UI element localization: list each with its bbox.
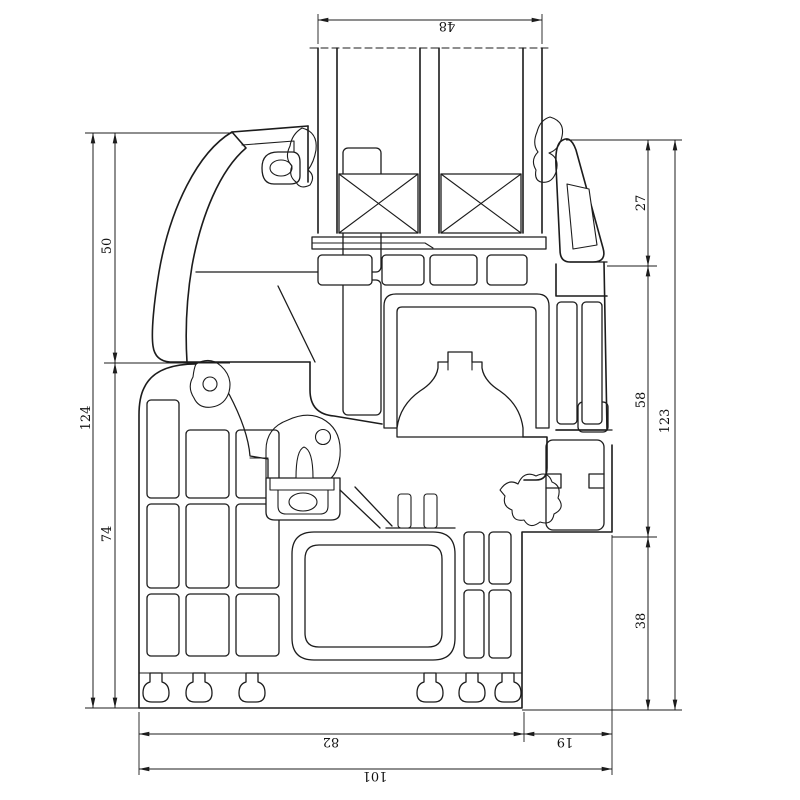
dim-label-right-overall: 123 <box>658 409 673 434</box>
dim-label-top-glazing: 48 <box>439 18 456 33</box>
setting-blocks <box>318 255 527 285</box>
hardware-groove <box>397 352 523 437</box>
dim-label-left-upper: 50 <box>100 238 115 255</box>
cross-section-svg: 48 124 50 74 27 58 38 123 82 19 101 <box>0 0 800 800</box>
right-column <box>556 262 607 430</box>
dim-label-left-lower: 74 <box>100 526 115 543</box>
dim-label-right-upper: 27 <box>634 195 649 212</box>
glazing-bead-right <box>556 139 607 262</box>
dim-label-bottom-right: 19 <box>557 734 574 749</box>
frame-feet-slots <box>143 673 521 702</box>
spacer-bars <box>339 174 521 233</box>
center-gasket-holder <box>266 478 340 520</box>
dim-label-left-overall: 124 <box>79 406 94 431</box>
dim-label-bottom-main: 82 <box>323 734 340 749</box>
frame-steel-reinforcement <box>292 532 455 660</box>
sash-profile <box>152 117 607 480</box>
window-profile-drawing: 48 124 50 74 27 58 38 123 82 19 101 <box>0 0 800 800</box>
dim-label-bottom-overall: 101 <box>363 768 388 783</box>
sash-curved-face <box>152 132 246 362</box>
dim-label-right-middle: 58 <box>634 392 649 409</box>
dim-label-right-lower: 38 <box>634 613 649 630</box>
frame-overlap-gasket <box>190 360 230 407</box>
